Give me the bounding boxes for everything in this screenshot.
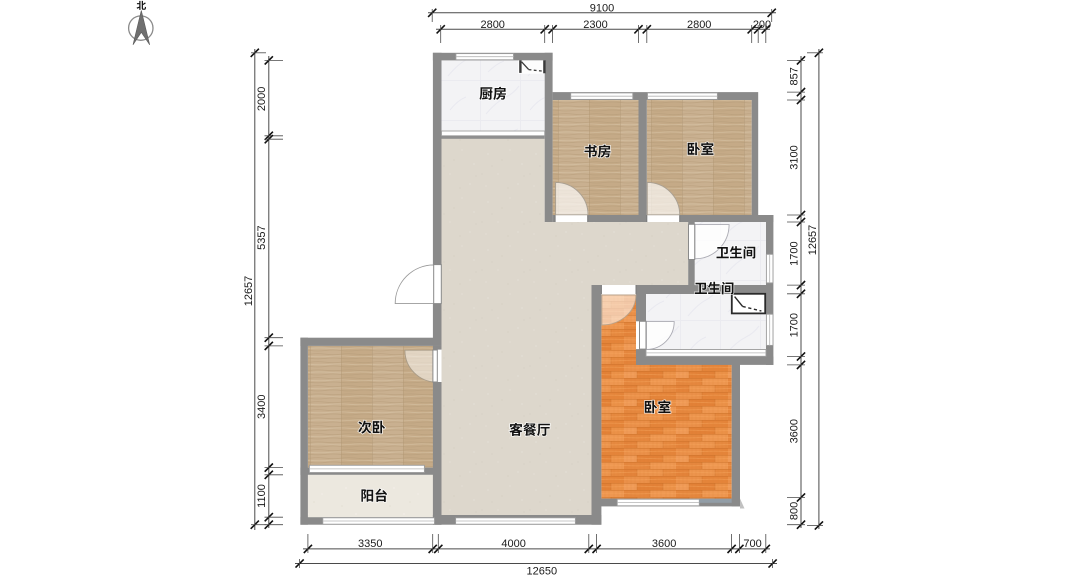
svg-text:1700: 1700 bbox=[788, 241, 800, 265]
svg-text:3100: 3100 bbox=[788, 145, 800, 169]
svg-text:800: 800 bbox=[788, 502, 800, 520]
svg-text:5357: 5357 bbox=[256, 225, 268, 249]
svg-text:2300: 2300 bbox=[583, 19, 607, 31]
svg-text:2000: 2000 bbox=[256, 87, 268, 111]
svg-text:3400: 3400 bbox=[256, 395, 268, 419]
svg-text:2800: 2800 bbox=[687, 19, 711, 31]
svg-text:1100: 1100 bbox=[256, 484, 268, 508]
svg-text:12657: 12657 bbox=[243, 276, 255, 307]
svg-text:12650: 12650 bbox=[527, 566, 558, 577]
svg-text:12657: 12657 bbox=[807, 225, 819, 256]
svg-text:857: 857 bbox=[788, 67, 800, 85]
svg-text:2800: 2800 bbox=[480, 19, 504, 31]
svg-text:9100: 9100 bbox=[590, 2, 614, 14]
svg-text:200: 200 bbox=[753, 19, 771, 31]
svg-text:3350: 3350 bbox=[358, 538, 382, 550]
svg-text:4000: 4000 bbox=[501, 538, 525, 550]
svg-text:3600: 3600 bbox=[788, 419, 800, 443]
svg-text:1700: 1700 bbox=[788, 313, 800, 337]
svg-text:700: 700 bbox=[743, 538, 761, 550]
svg-text:3600: 3600 bbox=[652, 538, 676, 550]
